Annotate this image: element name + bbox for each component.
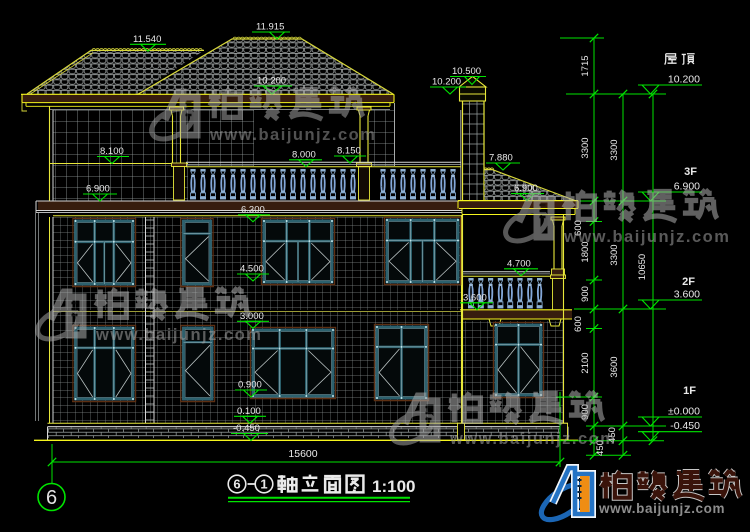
svg-text:www.baijunjz.com: www.baijunjz.com bbox=[209, 126, 376, 144]
svg-text:0.100: 0.100 bbox=[237, 406, 261, 417]
svg-text:-0.450: -0.450 bbox=[670, 420, 700, 432]
svg-text:10.200: 10.200 bbox=[257, 76, 286, 87]
svg-text:15600: 15600 bbox=[288, 448, 317, 460]
svg-text:10.500: 10.500 bbox=[452, 66, 481, 77]
svg-text:7.880: 7.880 bbox=[489, 153, 513, 164]
svg-text:8.100: 8.100 bbox=[100, 146, 124, 157]
svg-text:3.000: 3.000 bbox=[240, 311, 264, 322]
svg-text:3300: 3300 bbox=[580, 137, 591, 158]
svg-text:3.600: 3.600 bbox=[463, 292, 487, 303]
svg-text:600: 600 bbox=[573, 316, 584, 332]
svg-text:8.000: 8.000 bbox=[292, 149, 316, 160]
svg-text:6: 6 bbox=[46, 487, 57, 509]
svg-text:3600: 3600 bbox=[609, 356, 620, 377]
svg-text:10650: 10650 bbox=[637, 254, 648, 280]
svg-text:6.300: 6.300 bbox=[241, 204, 265, 215]
svg-text:4.700: 4.700 bbox=[507, 258, 531, 269]
svg-text:www.baijunjz.com: www.baijunjz.com bbox=[598, 501, 725, 516]
svg-text:11.915: 11.915 bbox=[256, 22, 284, 33]
svg-text:www.baijunjz.com: www.baijunjz.com bbox=[449, 430, 616, 448]
svg-text:www.baijunjz.com: www.baijunjz.com bbox=[95, 326, 262, 344]
svg-text:3300: 3300 bbox=[609, 139, 620, 160]
svg-text:3.600: 3.600 bbox=[674, 289, 700, 301]
svg-text:2F: 2F bbox=[682, 276, 695, 288]
svg-text:1:100: 1:100 bbox=[372, 477, 415, 496]
svg-text:0.900: 0.900 bbox=[238, 380, 262, 391]
svg-text:2100: 2100 bbox=[580, 352, 591, 373]
svg-text:900: 900 bbox=[580, 286, 591, 302]
svg-text:4.500: 4.500 bbox=[240, 264, 264, 275]
svg-text:1F: 1F bbox=[683, 385, 696, 397]
svg-text:11.540: 11.540 bbox=[133, 34, 161, 45]
svg-text:www.baijunjz.com: www.baijunjz.com bbox=[563, 228, 730, 246]
svg-text:1715: 1715 bbox=[580, 55, 591, 76]
svg-text:6: 6 bbox=[233, 477, 240, 492]
svg-text:6.900: 6.900 bbox=[86, 184, 110, 195]
svg-text:3300: 3300 bbox=[609, 244, 620, 265]
svg-text:±0.000: ±0.000 bbox=[668, 406, 700, 418]
svg-text:8.150: 8.150 bbox=[337, 146, 361, 157]
svg-text:1: 1 bbox=[260, 477, 267, 492]
svg-text:-0.450: -0.450 bbox=[233, 423, 260, 434]
svg-text:10.200: 10.200 bbox=[432, 77, 461, 88]
svg-text:3F: 3F bbox=[684, 166, 697, 178]
svg-text:10.200: 10.200 bbox=[668, 74, 700, 86]
